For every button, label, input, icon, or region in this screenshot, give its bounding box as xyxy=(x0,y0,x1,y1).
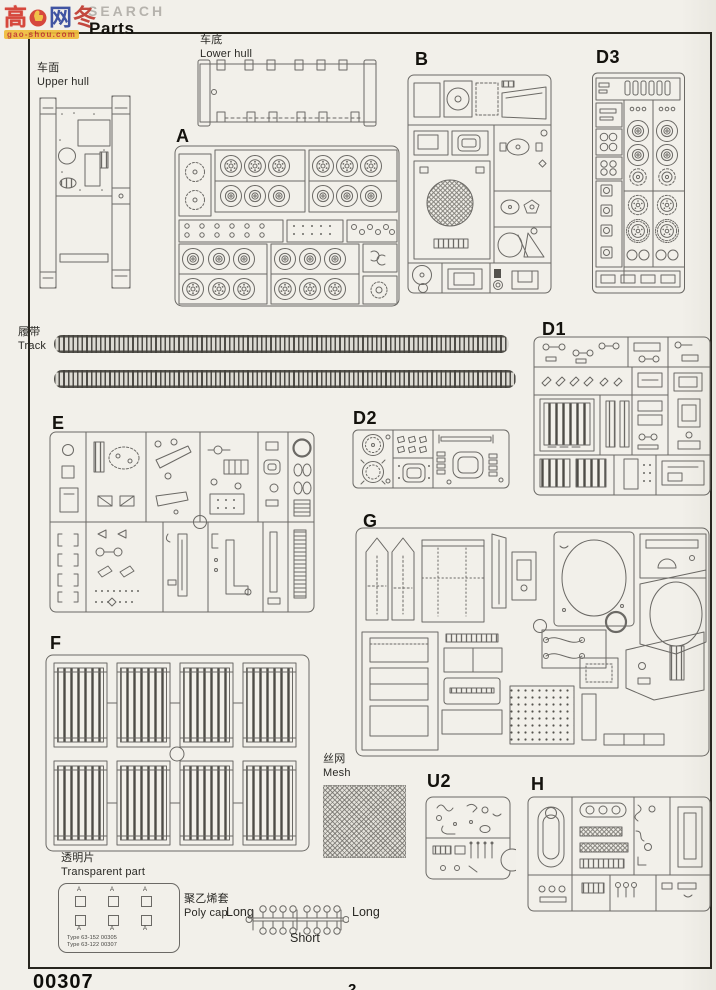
kit-number: 00307 xyxy=(33,971,94,990)
watermark-logo: 高 网 冬 gao-shou.com xyxy=(4,5,96,39)
polycap-long-right-label: Long xyxy=(352,905,380,919)
mesh-label: 丝网 Mesh xyxy=(323,753,351,780)
transparent-part-letter: A xyxy=(143,926,147,932)
sprue-h-label: H xyxy=(531,774,545,795)
transparent-part-letter: A xyxy=(110,887,114,893)
watermark-domain-text: gao-shou.com xyxy=(4,30,79,39)
clear-part xyxy=(141,896,152,907)
track-strip-1 xyxy=(54,335,509,353)
sprue-e-drawing xyxy=(48,430,316,614)
mesh-swatch xyxy=(323,785,406,858)
sprue-f-label: F xyxy=(50,633,62,654)
transparent-part-letter: A xyxy=(143,887,147,893)
mesh-label-cn: 丝网 xyxy=(323,753,351,767)
sprue-h-drawing xyxy=(526,795,712,913)
lower-hull-label-cn: 车底 xyxy=(200,34,252,48)
lower-hull-drawing xyxy=(191,52,381,130)
upper-hull-label-cn: 车面 xyxy=(37,62,89,76)
mesh-label-en: Mesh xyxy=(323,767,351,781)
polycap-label: 聚乙烯套 Poly cap xyxy=(184,893,229,920)
transparent-part-letter: A xyxy=(77,887,81,893)
transparent-part-label: 透明片 Transparent part xyxy=(61,852,145,879)
watermark-logo-characters: 高 网 冬 xyxy=(4,5,96,29)
sprue-d2-drawing xyxy=(351,428,511,490)
transparent-part-letter: A xyxy=(110,926,114,932)
logo-char-wang: 网 xyxy=(49,5,72,29)
track-strip-2 xyxy=(54,370,516,388)
sprue-u2-label: U2 xyxy=(427,771,451,792)
sprue-g-drawing xyxy=(354,526,711,760)
sprue-d3-drawing xyxy=(591,71,686,295)
track-label-en: Track xyxy=(18,340,46,354)
sprue-u2-drawing xyxy=(423,794,516,884)
sprue-d3-label: D3 xyxy=(596,47,620,68)
sprue-a-drawing xyxy=(173,142,403,310)
clear-part xyxy=(108,896,119,907)
page-number: 2 xyxy=(348,981,356,990)
polycap-label-en: Poly cap xyxy=(184,907,229,921)
sprue-d1-drawing xyxy=(532,335,712,497)
transparent-part-label-en: Transparent part xyxy=(61,866,145,880)
clear-part xyxy=(75,896,86,907)
clear-part xyxy=(108,915,119,926)
transparent-part-letter: A xyxy=(77,926,81,932)
instruction-sheet-page: SEARCH Parts 高 网 冬 gao-shou.com 车面 Upper… xyxy=(0,0,716,990)
transparent-part-label-cn: 透明片 xyxy=(61,852,145,866)
sprue-b-label: B xyxy=(415,49,429,70)
sprue-f-drawing xyxy=(44,653,311,853)
transparent-type-line-2: Type 63-122 00307 xyxy=(67,942,117,949)
sprue-d2-label: D2 xyxy=(353,408,377,429)
polycap-label-cn: 聚乙烯套 xyxy=(184,893,229,907)
clear-part xyxy=(75,915,86,926)
sprue-b-drawing xyxy=(406,73,553,295)
transparent-sprue: A A A A A A Type 63-152 00305 Type 63-12… xyxy=(58,883,180,953)
track-label-cn: 履带 xyxy=(18,326,46,340)
upper-hull-drawing xyxy=(34,88,140,294)
thumbs-up-mascot-icon xyxy=(28,6,48,28)
upper-hull-label-en: Upper hull xyxy=(37,76,89,90)
clear-part xyxy=(141,915,152,926)
transparent-type-line-1: Type 63-152 00305 xyxy=(67,935,117,942)
logo-char-extra: 冬 xyxy=(73,5,96,29)
watermark-overlay-text: SEARCH xyxy=(88,3,165,19)
track-label: 履带 Track xyxy=(18,326,46,353)
logo-char-gao: 高 xyxy=(4,5,27,29)
polycap-short-label: Short xyxy=(290,931,320,945)
upper-hull-label: 车面 Upper hull xyxy=(37,62,89,89)
